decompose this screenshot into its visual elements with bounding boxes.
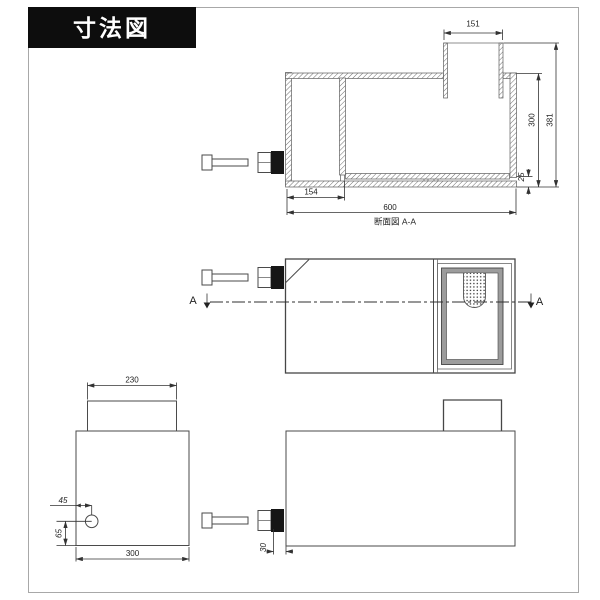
dim-25-label: 25 [517, 172, 526, 182]
section-label-left: A [189, 295, 197, 307]
section-bottom-shell [286, 181, 517, 187]
plan-view: A A [189, 259, 544, 373]
dim-600: 600 [287, 189, 516, 216]
plan-drain-pipe [202, 267, 284, 289]
dim-45-label: 45 [59, 496, 68, 505]
section-arrow-left [204, 294, 211, 309]
front-view: 230 45 65 300 [50, 376, 189, 562]
section-baffle [340, 78, 346, 175]
section-arrow-right [528, 294, 535, 309]
dim-45: 45 [50, 496, 92, 515]
section-caption: 断面図 A-A [374, 217, 416, 227]
dim-230-label: 230 [125, 376, 139, 385]
section-raised-floor [346, 174, 510, 180]
dim-25: 25 [517, 169, 533, 195]
section-view: 151 381 300 25 154 [202, 20, 559, 227]
title-block: 寸法図 [28, 7, 196, 48]
dim-300-front-label: 300 [126, 549, 140, 558]
section-drain-pipe [202, 152, 284, 174]
dim-300-label: 300 [528, 113, 537, 127]
section-label-right: A [536, 296, 544, 308]
side-riser [444, 400, 502, 431]
plan-corner-chamfer [286, 260, 309, 283]
section-left-wall [286, 73, 292, 186]
section-riser-right-wall [499, 43, 503, 98]
section-riser-left-wall [444, 43, 448, 98]
dim-381-label: 381 [546, 113, 555, 127]
dim-300: 300 [517, 74, 543, 188]
dim-151: 151 [444, 20, 503, 41]
section-top-rim-left [286, 73, 444, 79]
dim-154-label: 154 [304, 188, 318, 197]
section-right-wall [510, 73, 517, 178]
side-view: 30 [202, 400, 515, 555]
dimension-drawing-page: 寸法図 151 [0, 0, 600, 600]
dim-230: 230 [88, 376, 177, 400]
page-title: 寸法図 [73, 15, 151, 41]
side-body [286, 431, 515, 546]
front-body [76, 431, 189, 546]
side-drain-pipe [202, 510, 284, 532]
dim-151-label: 151 [466, 20, 480, 29]
dim-600-label: 600 [383, 203, 397, 212]
front-lid [88, 401, 177, 431]
dim-65-label: 65 [55, 529, 64, 538]
dim-30: 30 [259, 529, 293, 555]
technical-drawing: 寸法図 151 [0, 0, 600, 600]
dim-30-label: 30 [259, 543, 268, 552]
dim-300-front: 300 [76, 547, 189, 562]
